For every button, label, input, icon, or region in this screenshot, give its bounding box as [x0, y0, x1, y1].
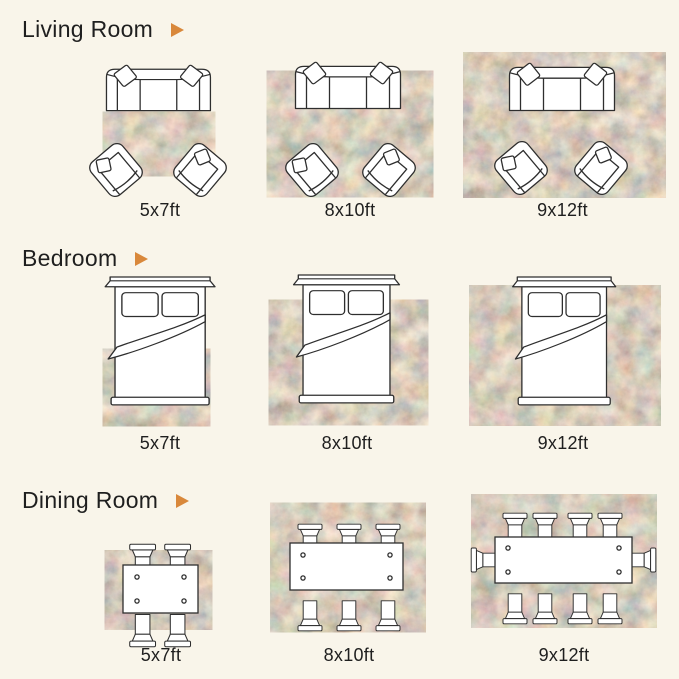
sofa	[510, 63, 615, 111]
figure-living-room-8x10	[260, 56, 440, 198]
bedroom-header: Bedroom	[22, 245, 148, 272]
size-label: 8x10ft	[260, 200, 440, 221]
figure-bedroom-8x10	[263, 266, 431, 426]
living-room-header: Living Room	[22, 16, 184, 43]
dining-room-header: Dining Room	[22, 487, 189, 514]
arrow-right-icon	[176, 494, 189, 508]
figure-bedroom-9x12	[456, 266, 670, 426]
living-room-title: Living Room	[22, 16, 153, 43]
sofa	[106, 65, 210, 111]
arrow-right-icon	[135, 252, 148, 266]
dining-table	[495, 537, 632, 583]
size-label: 8x10ft	[263, 645, 435, 666]
size-label: 9x12ft	[455, 200, 670, 221]
size-label: 9x12ft	[456, 433, 670, 454]
dining-table	[123, 565, 198, 613]
figure-dining-room-8x10	[263, 500, 435, 636]
figure-living-room-5x7	[85, 58, 235, 198]
arrow-right-icon	[171, 23, 184, 37]
bed	[294, 275, 400, 403]
bedroom-title: Bedroom	[22, 245, 117, 272]
figure-bedroom-5x7	[95, 270, 225, 430]
size-label: 5x7ft	[100, 645, 222, 666]
size-label: 9x12ft	[456, 645, 672, 666]
figure-dining-room-9x12	[456, 494, 672, 630]
section-dining-room: Dining Room 5x7ft	[0, 468, 679, 679]
bed	[105, 277, 215, 405]
size-label: 5x7ft	[95, 433, 225, 454]
section-living-room: Living Room 5x7ft 8x10ft 9x12ft	[0, 0, 679, 228]
bed	[513, 277, 616, 405]
dining-table	[290, 543, 403, 590]
size-label: 5x7ft	[85, 200, 235, 221]
sofa	[296, 62, 401, 109]
figure-dining-room-5x7	[100, 513, 222, 651]
rug-size-guide: Living Room 5x7ft 8x10ft 9x12ft Bedroo	[0, 0, 679, 679]
size-label: 8x10ft	[263, 433, 431, 454]
section-bedroom: Bedroom 5x7ft 8x10ft 9x12ft	[0, 228, 679, 468]
figure-living-room-9x12	[455, 52, 670, 198]
dining-room-title: Dining Room	[22, 487, 158, 514]
